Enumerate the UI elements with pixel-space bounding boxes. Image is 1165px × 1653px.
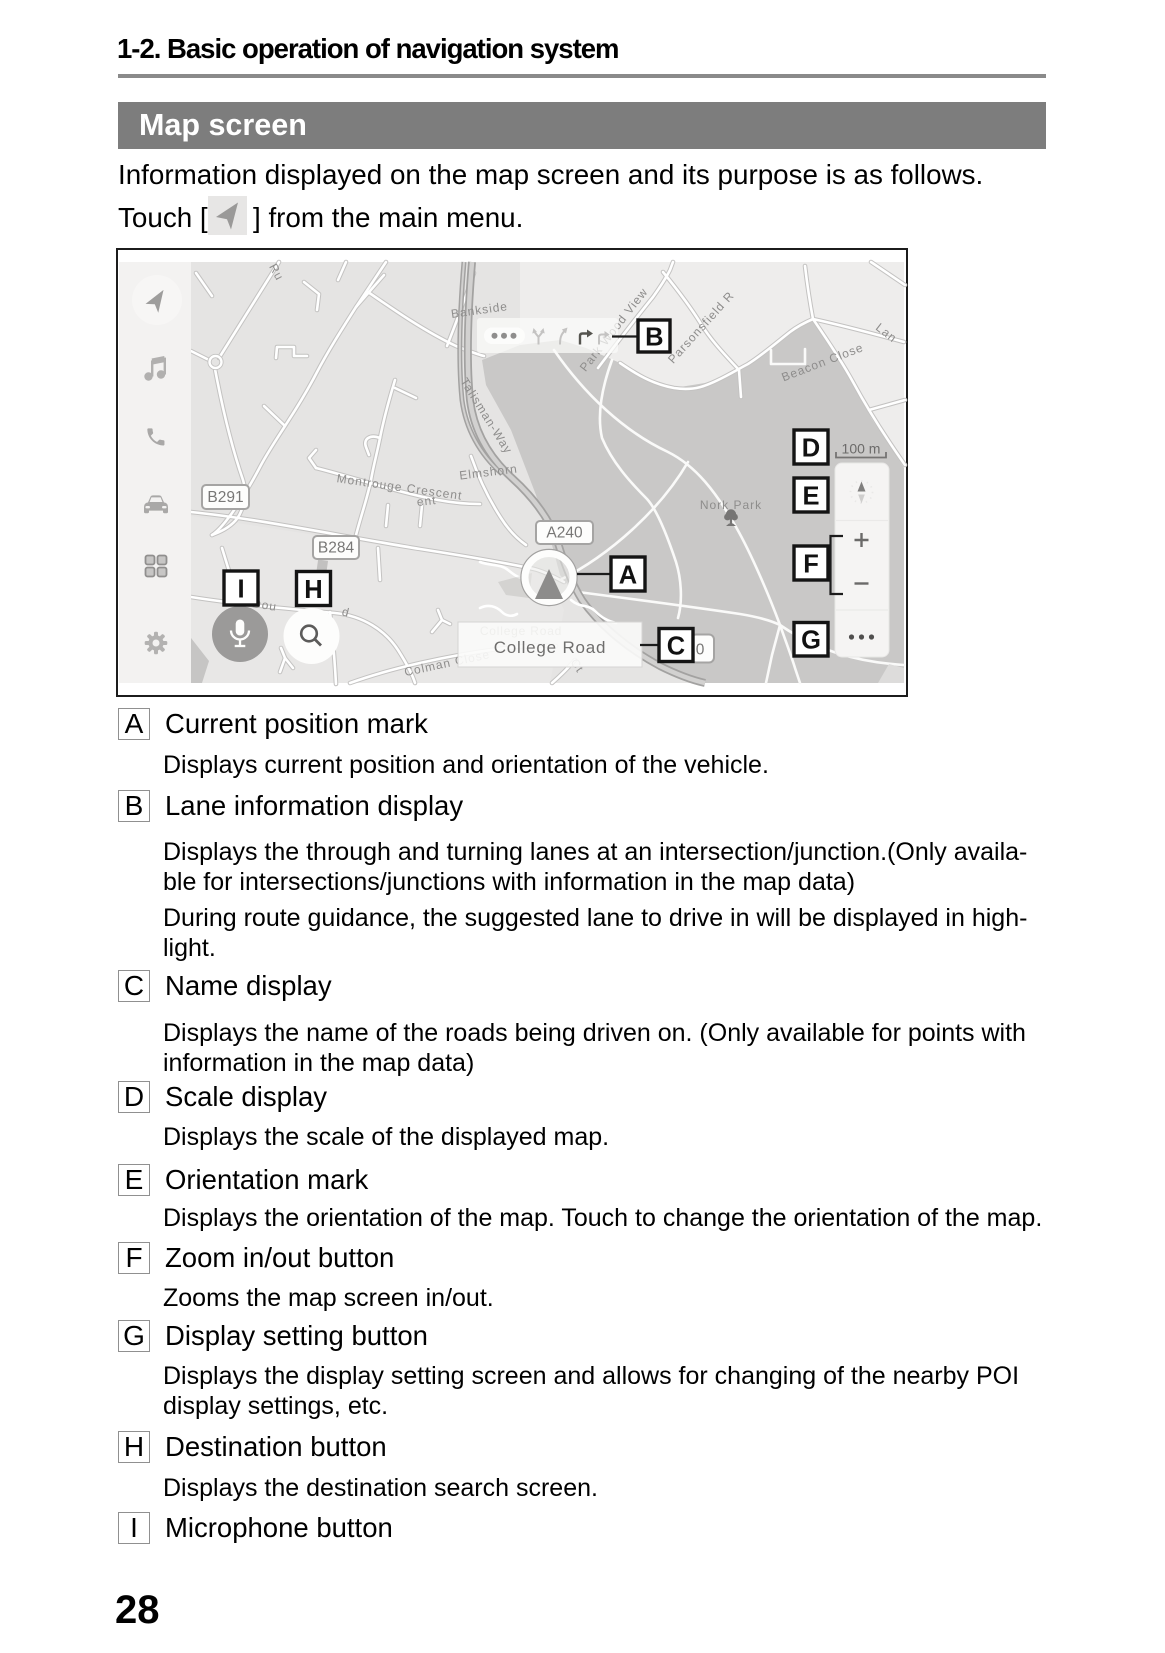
svg-text:ent: ent bbox=[416, 493, 437, 509]
svg-text:B291: B291 bbox=[207, 489, 243, 506]
svg-text:D: D bbox=[802, 434, 820, 462]
svg-text:0: 0 bbox=[696, 642, 705, 659]
svg-text:College Road: College Road bbox=[494, 638, 607, 657]
svg-text:C: C bbox=[667, 632, 685, 660]
svg-text:H: H bbox=[304, 576, 322, 604]
svg-text:100 m: 100 m bbox=[842, 441, 881, 457]
svg-text:A240: A240 bbox=[546, 525, 583, 542]
svg-text:B284: B284 bbox=[318, 540, 355, 557]
svg-text:F: F bbox=[803, 550, 819, 578]
svg-text:College Road: College Road bbox=[480, 624, 562, 638]
svg-text:E: E bbox=[802, 482, 819, 510]
svg-text:I: I bbox=[237, 575, 244, 603]
svg-text:A: A bbox=[619, 561, 637, 589]
svg-text:B: B bbox=[645, 323, 663, 351]
svg-text:G: G bbox=[801, 627, 821, 655]
